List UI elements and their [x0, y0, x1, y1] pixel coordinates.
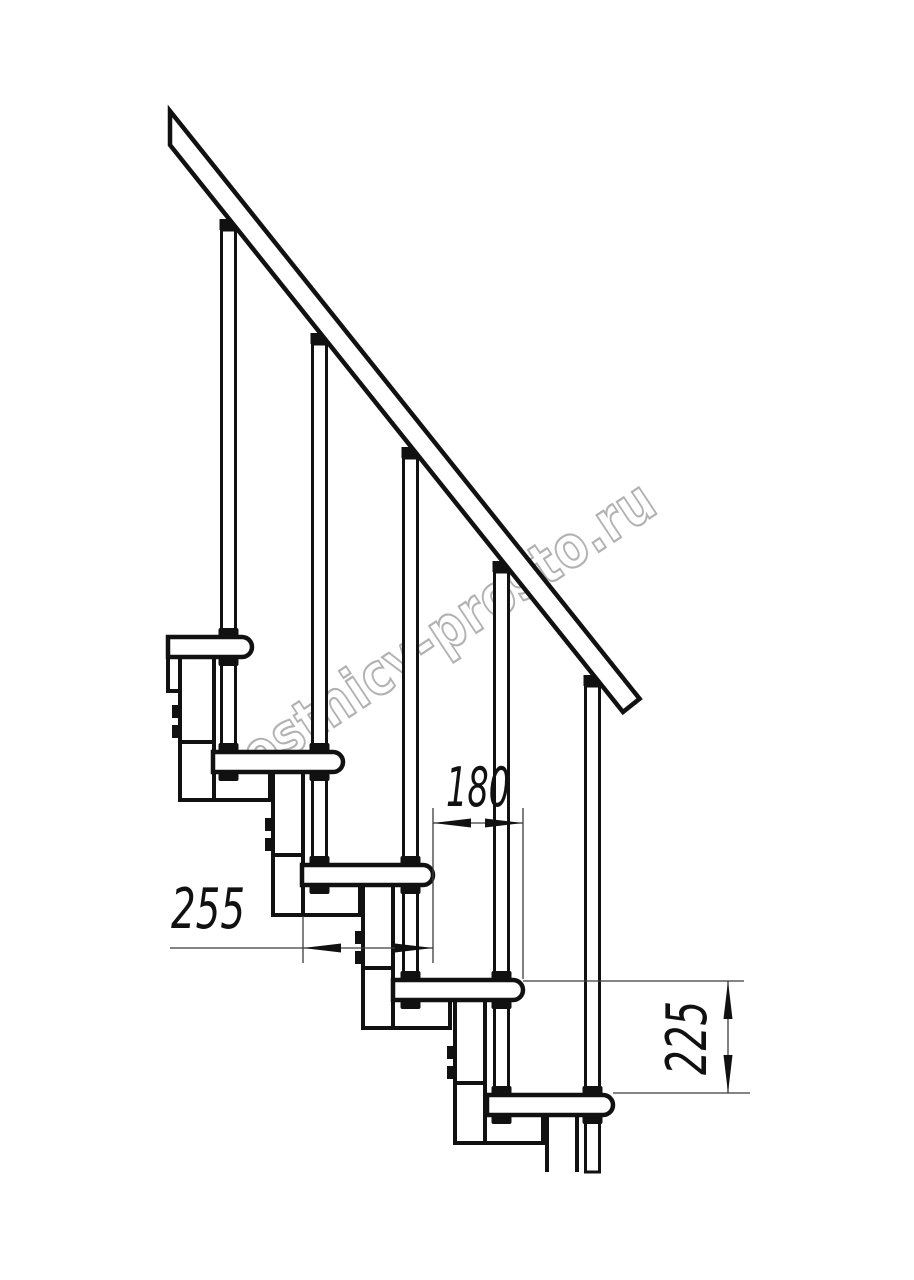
dimension-rise-label: 225	[655, 1001, 720, 1075]
dimension-tread-depth-label: 255	[171, 877, 245, 942]
tread-4	[393, 980, 523, 1000]
baluster-rod-4	[493, 561, 511, 1095]
baluster-rod-2	[311, 333, 329, 865]
baluster-rod-3	[402, 447, 420, 980]
drawing-canvas: lestnicy-prosto.ru	[0, 0, 914, 1280]
baluster-rod-1	[220, 219, 238, 752]
tread-5	[487, 1095, 613, 1115]
tread-2	[213, 752, 343, 772]
tread-1	[168, 637, 252, 657]
support-module-5	[547, 1117, 577, 1172]
tread-3	[302, 865, 433, 885]
dimension-going-label: 180	[446, 756, 510, 819]
dimension-rise: 225	[523, 981, 750, 1093]
